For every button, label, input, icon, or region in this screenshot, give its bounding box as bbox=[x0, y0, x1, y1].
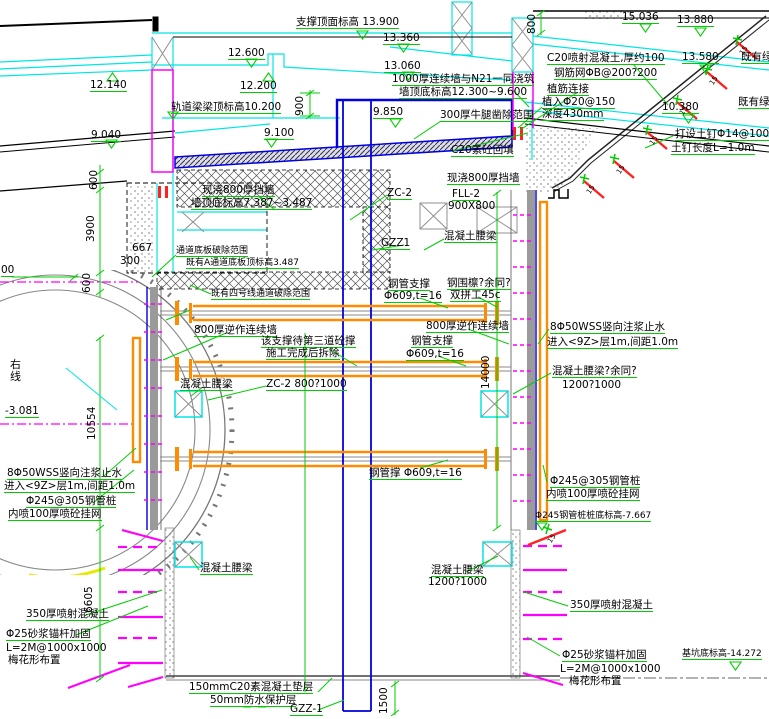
label-rebar-embed-2: 深度430mm bbox=[542, 109, 604, 121]
label-anchor-right-1: Φ25砂浆锚杆加固 bbox=[562, 650, 647, 662]
label-elev-13880: 13.880 bbox=[677, 15, 714, 27]
label-wss-left-2: 进入<9Z>层1m,间距1.0m bbox=[4, 481, 135, 493]
label-elev-neg3081: -3.081 bbox=[5, 406, 39, 418]
anchor-rows bbox=[68, 530, 567, 688]
dim-00-clipped: 00 bbox=[1, 265, 14, 277]
label-zc2: ZC-2 bbox=[387, 188, 412, 200]
label-steel-strut-3: 钢管撑 Φ609,t=16 bbox=[369, 468, 462, 480]
label-shotcrete-note-1: C20喷射混凝土,厚约100 bbox=[547, 53, 665, 65]
label-concrete-waler-top: 混凝土腰梁 bbox=[444, 231, 497, 243]
label-wss-right-1: 8Φ50WSS竖向注浆止水 bbox=[550, 322, 665, 334]
dim-800: 800 bbox=[526, 14, 538, 34]
label-steel-strut-2: 钢管支撑 bbox=[411, 336, 453, 348]
label-c20-backfill: C20素砼回填 bbox=[451, 145, 514, 157]
label-concrete-waler-bottom-left: 混凝土腰梁 bbox=[200, 563, 253, 575]
label-rebar-connect: 植筋连接 bbox=[547, 84, 589, 96]
label-gzz1-bottom: GZZ-1 bbox=[290, 704, 323, 716]
dim-6605: 6605 bbox=[83, 586, 95, 613]
label-wss-right-2: 进入<9Z>层1m,间距1.0m bbox=[547, 337, 678, 349]
label-wss-left-1: 8Φ50WSS竖向注浆止水 bbox=[7, 468, 122, 480]
label-elev-13360: 13.360 bbox=[383, 33, 420, 45]
label-rail-beam-elevation: 轨道梁梁顶标高10.200 bbox=[171, 102, 281, 114]
label-elev-9040: 9.040 bbox=[91, 130, 121, 142]
label-steel-waler-2: 双拼工45c bbox=[450, 290, 501, 302]
dim-14000: 14000 bbox=[480, 356, 492, 389]
label-strut-removal-2: 施工完成后拆除 bbox=[266, 348, 340, 360]
label-cast-wall-800-elev: 墙顶底标高7.387~3.487 bbox=[191, 198, 312, 210]
label-fll2-size: 900X800 bbox=[448, 201, 495, 212]
label-elev-13580: 13.580 bbox=[682, 52, 719, 64]
label-right-line: 右线 bbox=[10, 359, 22, 383]
label-passage-removal: 通道底板破除范围 bbox=[176, 247, 248, 257]
label-concrete-waler-mid: 混凝土腰梁 bbox=[180, 379, 233, 391]
label-elev-12140: 12.140 bbox=[90, 80, 127, 92]
label-corbel-removal: 300厚牛腿凿除范围 bbox=[440, 110, 534, 122]
label-anchor-left-1: Φ25砂浆锚杆加固 bbox=[6, 629, 91, 641]
label-elev-12600: 12.600 bbox=[228, 48, 265, 60]
label-elev-9850: 9.850 bbox=[373, 107, 403, 119]
label-steel-strut-1-spec: Φ609,t=16 bbox=[384, 291, 442, 303]
cad-cross-section-drawing: 支撑顶面标高 13.900 13.360 12.600 13.060 12.14… bbox=[0, 0, 769, 719]
label-cushion-2: 50mm防水保护层 bbox=[210, 695, 296, 707]
label-pit-bottom-elevation: 基坑底标高-14.272 bbox=[682, 650, 762, 660]
label-wall-800-reverse-right: 800厚逆作连续墙 bbox=[426, 321, 509, 333]
dim-667: 667 bbox=[132, 242, 152, 254]
label-passage-slab-elev: 既有A通道底板顶标高3.487 bbox=[186, 259, 299, 269]
label-anchor-left-2: L=2M@1000x1000 bbox=[6, 643, 107, 654]
dim-10554: 10554 bbox=[86, 407, 98, 440]
label-pipe-pile-right-2: 内喷100厚喷砼挂网 bbox=[546, 489, 640, 501]
label-soil-nail-1: 打设土钉Φ14@1000 bbox=[675, 129, 769, 141]
dim-3900: 3900 bbox=[85, 215, 97, 242]
label-pipe-pile-left-1: Φ245@305钢管桩 bbox=[26, 496, 116, 508]
label-cast-wall-800-b: 现浇800厚挡墙 bbox=[447, 173, 520, 185]
dim-1500: 1500 bbox=[378, 687, 390, 714]
label-pipe-pile-bottom: Φ245钢管桩桩底标高-7.667 bbox=[535, 512, 651, 522]
label-soil-nail-2: 土钉长度L=1.0m bbox=[671, 143, 755, 155]
label-anchor-right-2: L=2M@1000x1000 bbox=[560, 664, 661, 675]
label-shotcrete-350-right: 350厚喷射混凝土 bbox=[570, 600, 653, 612]
label-shotcrete-350-left: 350厚喷射混凝土 bbox=[26, 609, 109, 621]
label-elev-15036: 15.036 bbox=[622, 12, 659, 24]
label-existing-green-2: 既有绿化 bbox=[738, 97, 769, 109]
label-zc2-size: ZC-2 800?1000 bbox=[266, 379, 347, 391]
label-cast-wall-800: 现浇800厚挡墙 bbox=[202, 185, 275, 197]
dim-900: 900 bbox=[294, 96, 306, 116]
label-elev-12200: 12.200 bbox=[240, 81, 277, 93]
dim-300: 300 bbox=[120, 255, 140, 267]
steel-pipe-pile-left bbox=[133, 338, 140, 462]
label-line4-removal: 既有四号线通道破除范围 bbox=[211, 290, 310, 300]
label-steel-strut-2-spec: Φ609,t=16 bbox=[406, 349, 464, 361]
label-waler-size-bottom: 1200?1000 bbox=[428, 577, 487, 588]
label-elev-9100: 9.100 bbox=[264, 128, 294, 140]
label-concrete-waler-rest: 混凝土腰梁?余同? bbox=[552, 366, 637, 378]
label-pipe-pile-right-1: Φ245@305钢管桩 bbox=[550, 476, 640, 488]
label-elev-13060: 13.060 bbox=[384, 61, 421, 73]
label-shotcrete-note-2: 钢筋网ΦB@200?200 bbox=[554, 68, 657, 80]
label-diaphragm-note-2: 墙顶底标高12.300~9.600 bbox=[399, 87, 527, 99]
label-support-top-elevation: 支撑顶面标高 13.900 bbox=[296, 17, 399, 29]
label-cushion-1: 150mmC20素混凝土垫层 bbox=[189, 682, 313, 694]
dim-600-bottom: 600 bbox=[81, 273, 93, 293]
steel-pipe-pile-right bbox=[540, 202, 547, 520]
label-anchor-right-3: 梅花形布置 bbox=[569, 676, 622, 687]
dim-600-top: 600 bbox=[88, 170, 100, 190]
label-anchor-left-3: 梅花形布置 bbox=[8, 655, 61, 666]
label-gzz1: GZZ1 bbox=[381, 238, 410, 250]
label-diaphragm-note-1: 1000厚连续墙与N21一同浇筑 bbox=[392, 74, 534, 86]
label-pipe-pile-left-2: 内喷100厚喷砼挂网 bbox=[8, 509, 102, 521]
label-waler-size-right: 1200?1000 bbox=[562, 380, 621, 391]
